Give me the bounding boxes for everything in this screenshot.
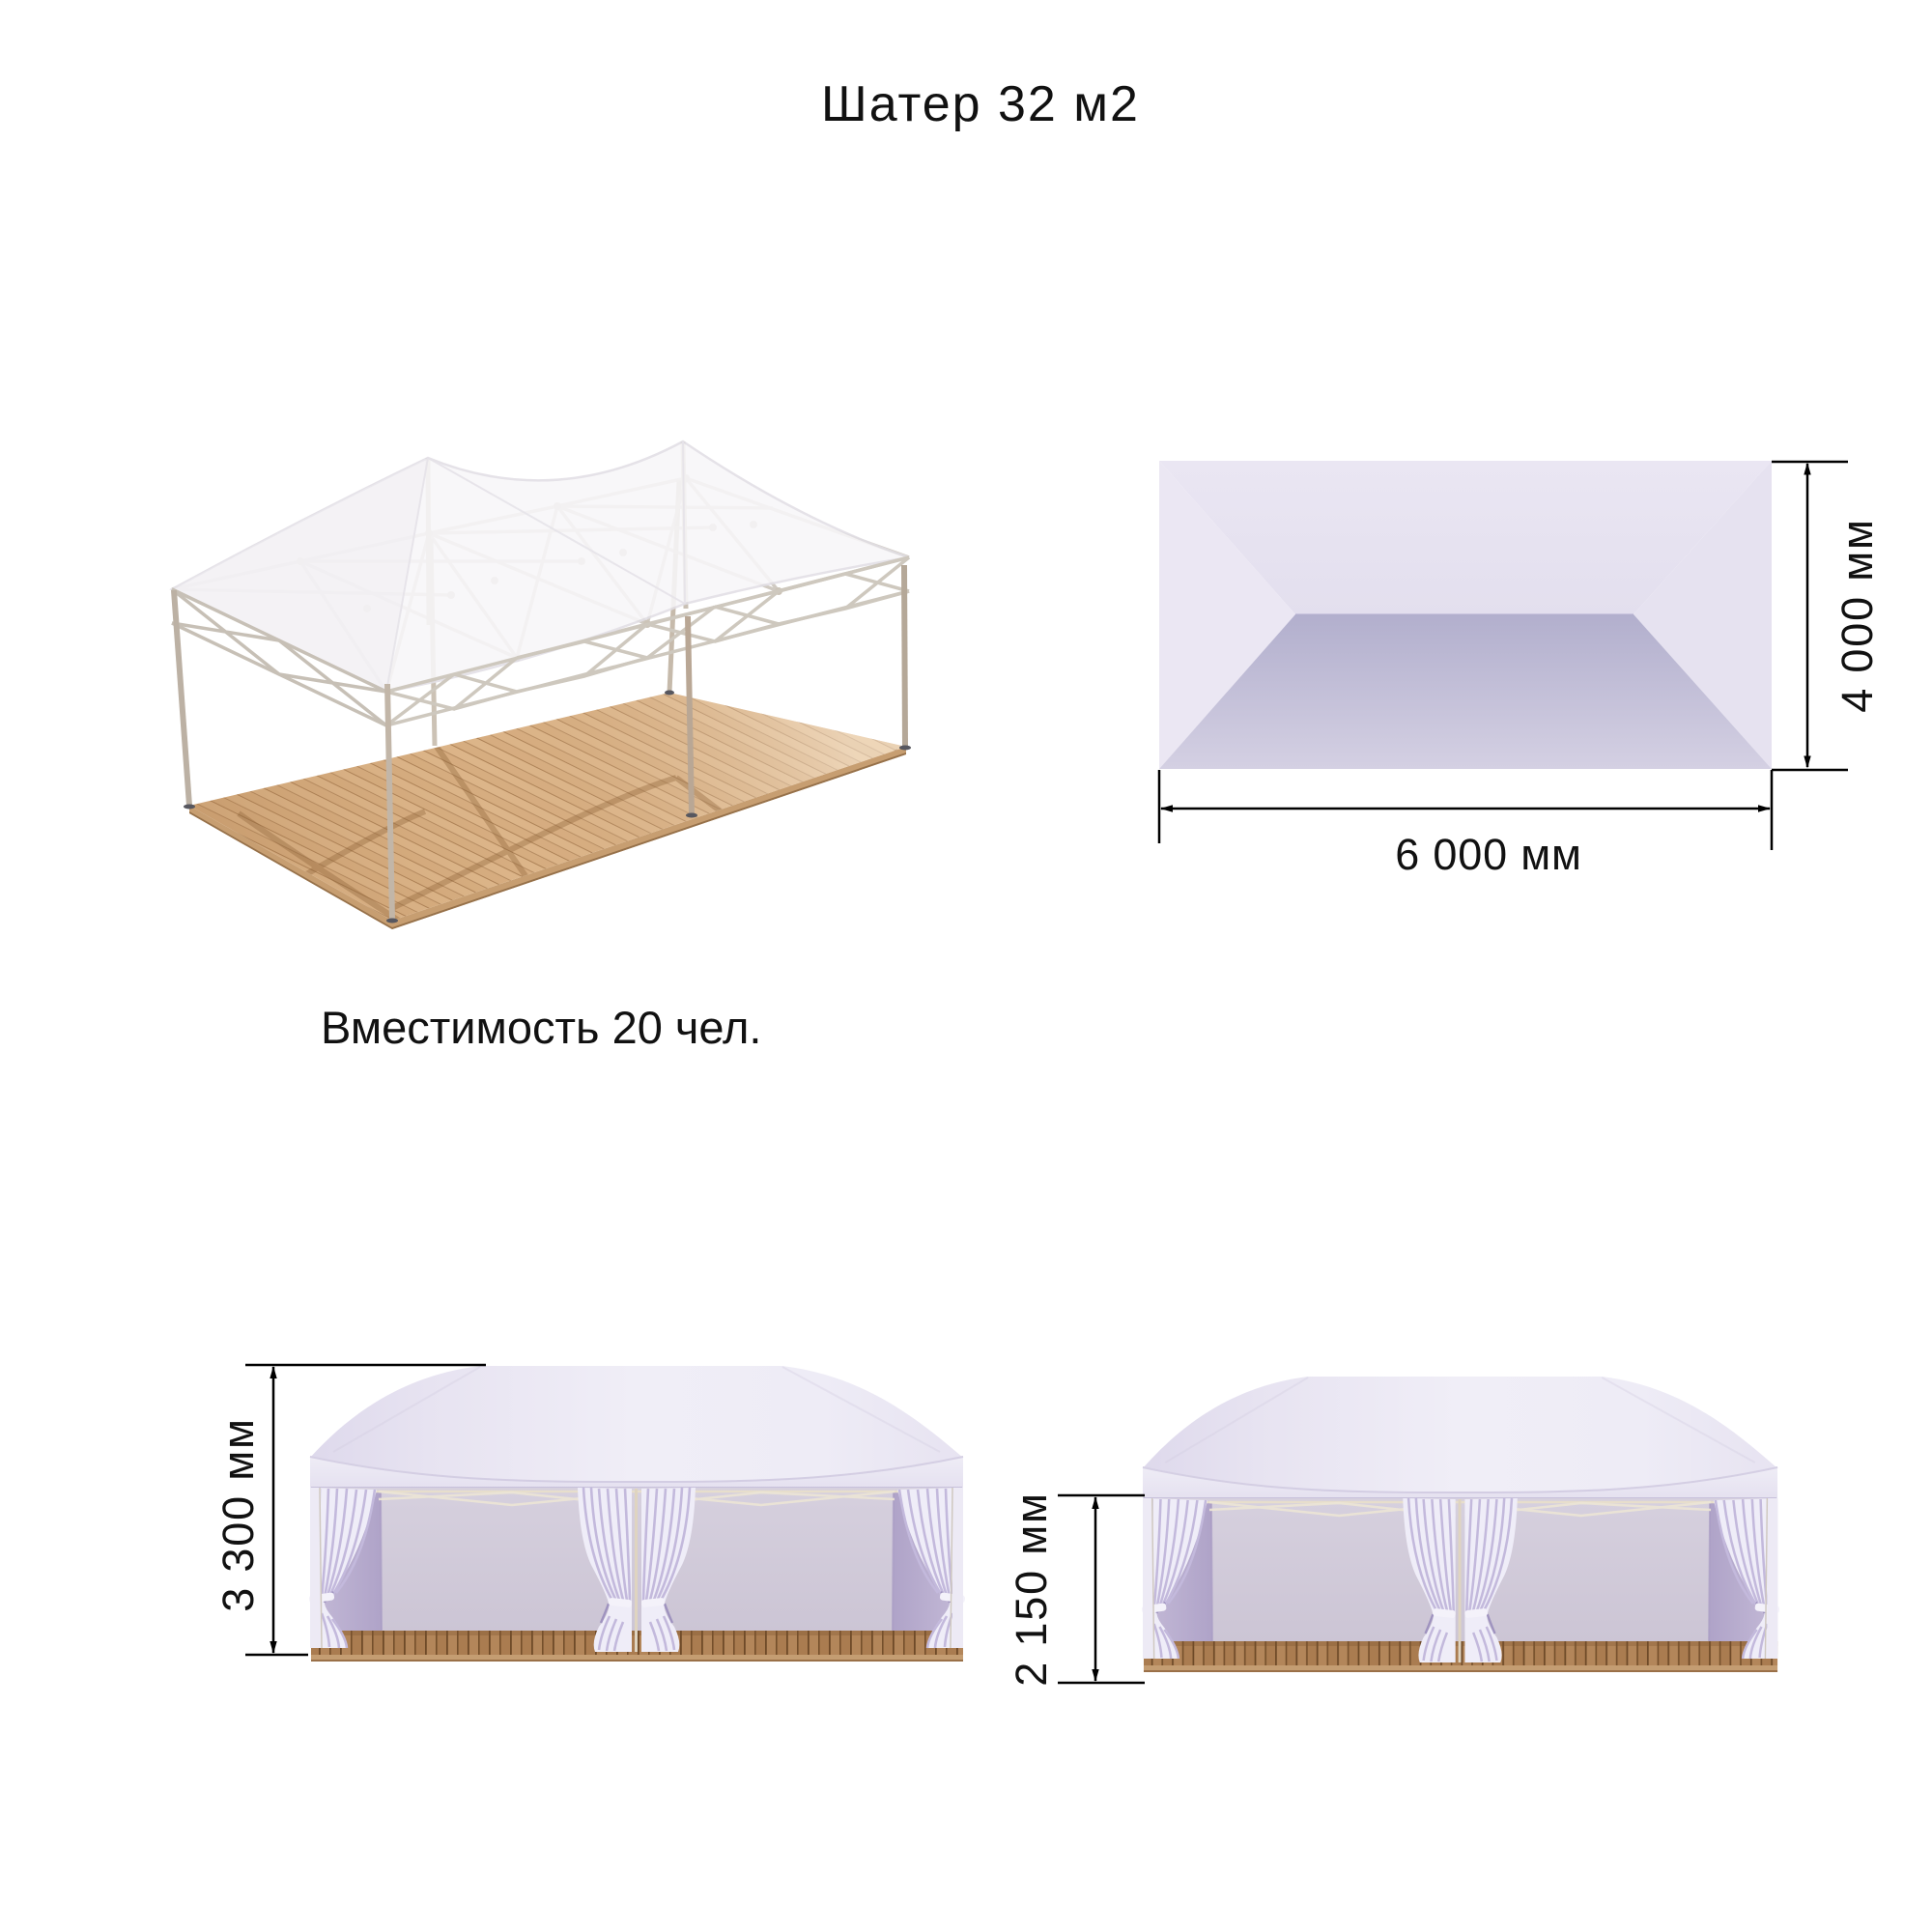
svg-text:6 000 мм: 6 000 мм [1395, 830, 1581, 879]
svg-text:Шатер 32 м2: Шатер 32 м2 [821, 76, 1140, 132]
svg-text:Вместимость 20 чел.: Вместимость 20 чел. [321, 1002, 761, 1053]
svg-text:3 300 мм: 3 300 мм [213, 1417, 263, 1611]
svg-text:4 000 мм: 4 000 мм [1833, 518, 1882, 712]
svg-text:2 150 мм: 2 150 мм [1007, 1492, 1056, 1686]
